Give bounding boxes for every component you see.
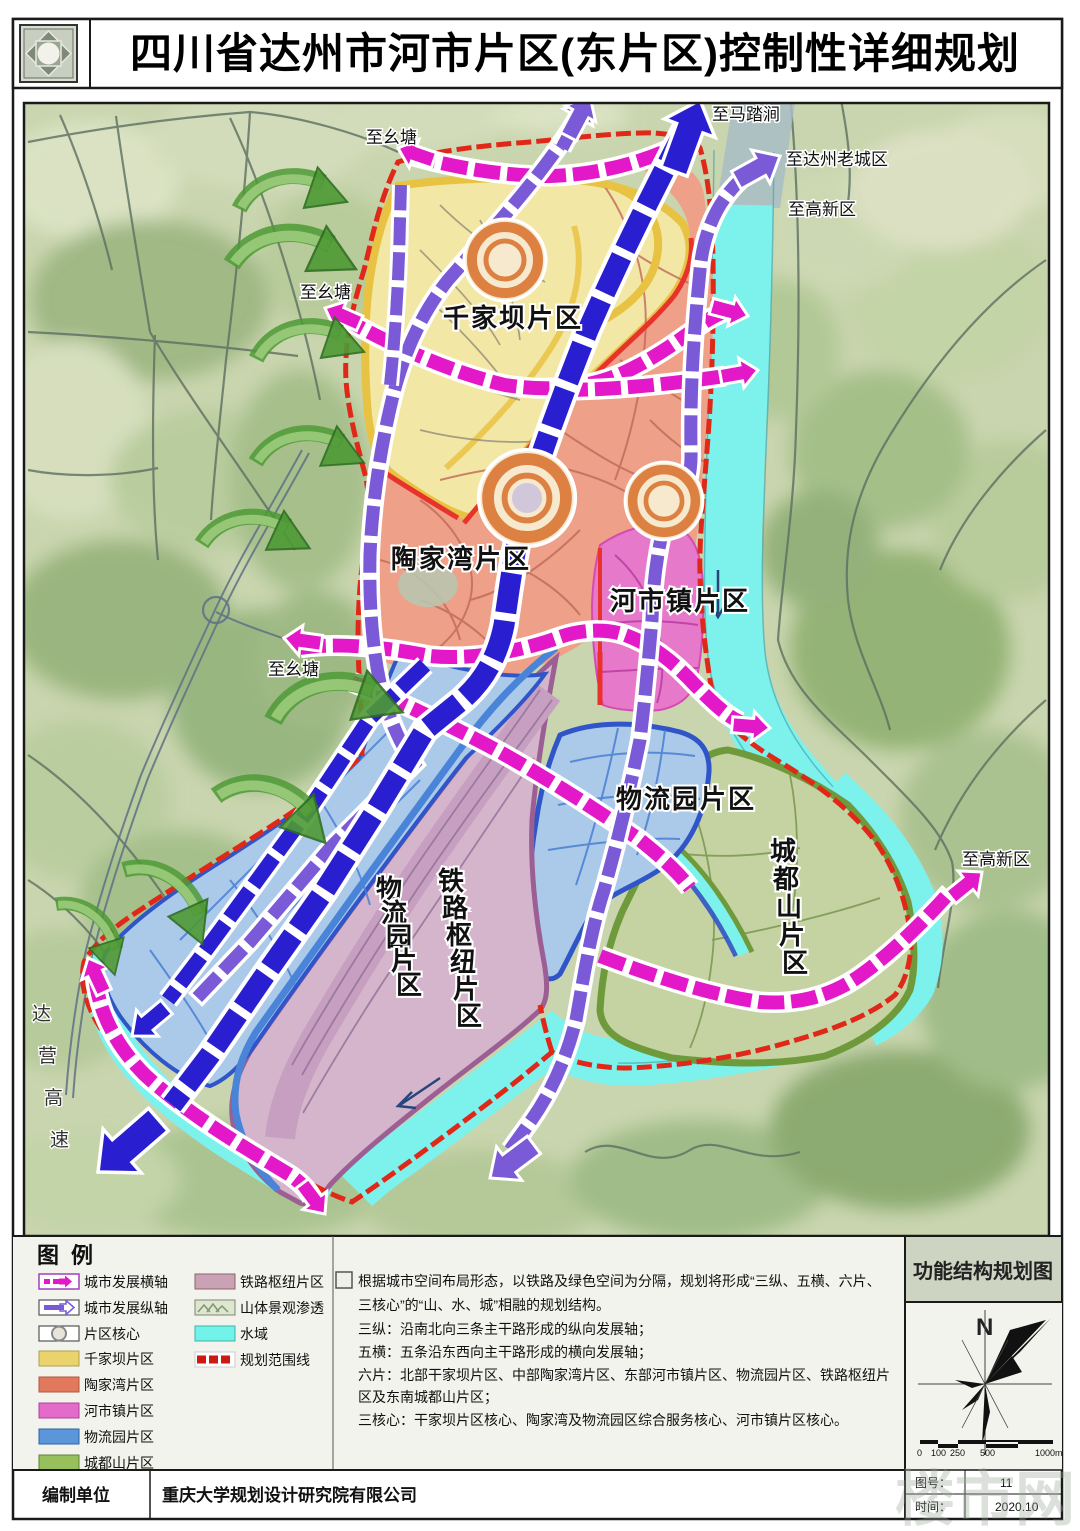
svg-text:区: 区 bbox=[396, 970, 422, 1000]
svg-text:五横：五条沿东西向主干路形成的横向发展轴；: 五横：五条沿东西向主干路形成的横向发展轴； bbox=[358, 1344, 652, 1361]
svg-text:500: 500 bbox=[980, 1448, 995, 1458]
svg-text:铁路枢纽片区: 铁路枢纽片区 bbox=[240, 1274, 324, 1290]
svg-text:物流园片区: 物流园片区 bbox=[616, 784, 756, 814]
svg-text:区: 区 bbox=[456, 1001, 482, 1031]
svg-text:速: 速 bbox=[50, 1129, 69, 1151]
svg-text:达: 达 bbox=[32, 1003, 51, 1025]
svg-text:根据城市空间布局形态，以铁路及绿色空间为分隔，规划将形成“三: 根据城市空间布局形态，以铁路及绿色空间为分隔，规划将形成“三纵、五横、六片、 bbox=[358, 1273, 881, 1289]
svg-text:至高新区: 至高新区 bbox=[788, 200, 856, 219]
svg-text:至幺塘: 至幺塘 bbox=[268, 660, 319, 679]
svg-text:楼市网: 楼市网 bbox=[895, 1466, 1075, 1531]
svg-text:物流园片区: 物流园片区 bbox=[84, 1429, 154, 1445]
svg-text:三核心：干家坝片区核心、陶家湾及物流园区综合服务核心、河市镇: 三核心：干家坝片区核心、陶家湾及物流园区综合服务核心、河市镇片区核心。 bbox=[358, 1412, 848, 1428]
svg-text:河市镇片区: 河市镇片区 bbox=[84, 1403, 154, 1419]
svg-text:河市镇片区: 河市镇片区 bbox=[610, 586, 750, 616]
svg-text:铁: 铁 bbox=[438, 866, 464, 896]
svg-text:100: 100 bbox=[931, 1448, 946, 1458]
svg-text:山: 山 bbox=[776, 892, 802, 922]
svg-text:至高新区: 至高新区 bbox=[962, 850, 1030, 869]
svg-text:区: 区 bbox=[782, 948, 808, 978]
svg-text:规划范围线: 规划范围线 bbox=[240, 1352, 310, 1368]
svg-text:水域: 水域 bbox=[240, 1326, 268, 1342]
svg-text:编制单位: 编制单位 bbox=[42, 1485, 110, 1505]
svg-text:片: 片 bbox=[779, 920, 805, 950]
svg-text:城市发展横轴: 城市发展横轴 bbox=[84, 1274, 168, 1290]
svg-text:至幺塘: 至幺塘 bbox=[366, 128, 417, 147]
svg-text:山体景观渗透: 山体景观渗透 bbox=[240, 1300, 324, 1316]
svg-text:纽: 纽 bbox=[450, 947, 476, 977]
svg-text:路: 路 bbox=[442, 893, 469, 923]
svg-text:片区核心: 片区核心 bbox=[84, 1326, 140, 1342]
svg-text:都: 都 bbox=[772, 864, 799, 894]
svg-text:陶家湾片区: 陶家湾片区 bbox=[84, 1377, 154, 1393]
svg-text:图例: 图例 bbox=[37, 1243, 105, 1268]
svg-text:六片：北部干家坝片区、中部陶家湾片区、东部河市镇片区、物流园: 六片：北部干家坝片区、中部陶家湾片区、东部河市镇片区、物流园片区、铁路枢纽片 bbox=[358, 1367, 890, 1383]
svg-text:250: 250 bbox=[950, 1448, 965, 1458]
svg-text:至马踏涧: 至马踏涧 bbox=[712, 105, 780, 124]
svg-text:千家坝片区: 千家坝片区 bbox=[443, 303, 583, 333]
svg-text:至达州老城区: 至达州老城区 bbox=[786, 150, 888, 169]
svg-text:三纵：沿南北向三条主干路形成的纵向发展轴；: 三纵：沿南北向三条主干路形成的纵向发展轴； bbox=[358, 1321, 652, 1338]
svg-text:千家坝片区: 千家坝片区 bbox=[84, 1351, 154, 1367]
svg-text:片: 片 bbox=[453, 974, 479, 1004]
svg-text:城市发展纵轴: 城市发展纵轴 bbox=[84, 1300, 168, 1316]
svg-text:四川省达州市河市片区(东片区)控制性详细规划: 四川省达州市河市片区(东片区)控制性详细规划 bbox=[130, 30, 1020, 77]
svg-text:区及东南城都山片区；: 区及东南城都山片区； bbox=[358, 1389, 498, 1406]
svg-text:三核心”的“山、水、城”相融的规划结构。: 三核心”的“山、水、城”相融的规划结构。 bbox=[358, 1297, 610, 1313]
svg-text:营: 营 bbox=[38, 1045, 57, 1067]
svg-text:高: 高 bbox=[44, 1087, 63, 1109]
svg-text:陶家湾片区: 陶家湾片区 bbox=[391, 544, 531, 574]
svg-text:1000m: 1000m bbox=[1035, 1448, 1063, 1458]
svg-text:0: 0 bbox=[917, 1448, 922, 1458]
svg-text:重庆大学规划设计研究院有限公司: 重庆大学规划设计研究院有限公司 bbox=[162, 1485, 417, 1505]
svg-text:至幺塘: 至幺塘 bbox=[300, 283, 351, 302]
svg-text:城: 城 bbox=[770, 836, 796, 866]
svg-text:枢: 枢 bbox=[446, 920, 472, 950]
svg-text:城都山片区: 城都山片区 bbox=[84, 1455, 154, 1471]
svg-text:功能结构规划图: 功能结构规划图 bbox=[913, 1259, 1053, 1283]
